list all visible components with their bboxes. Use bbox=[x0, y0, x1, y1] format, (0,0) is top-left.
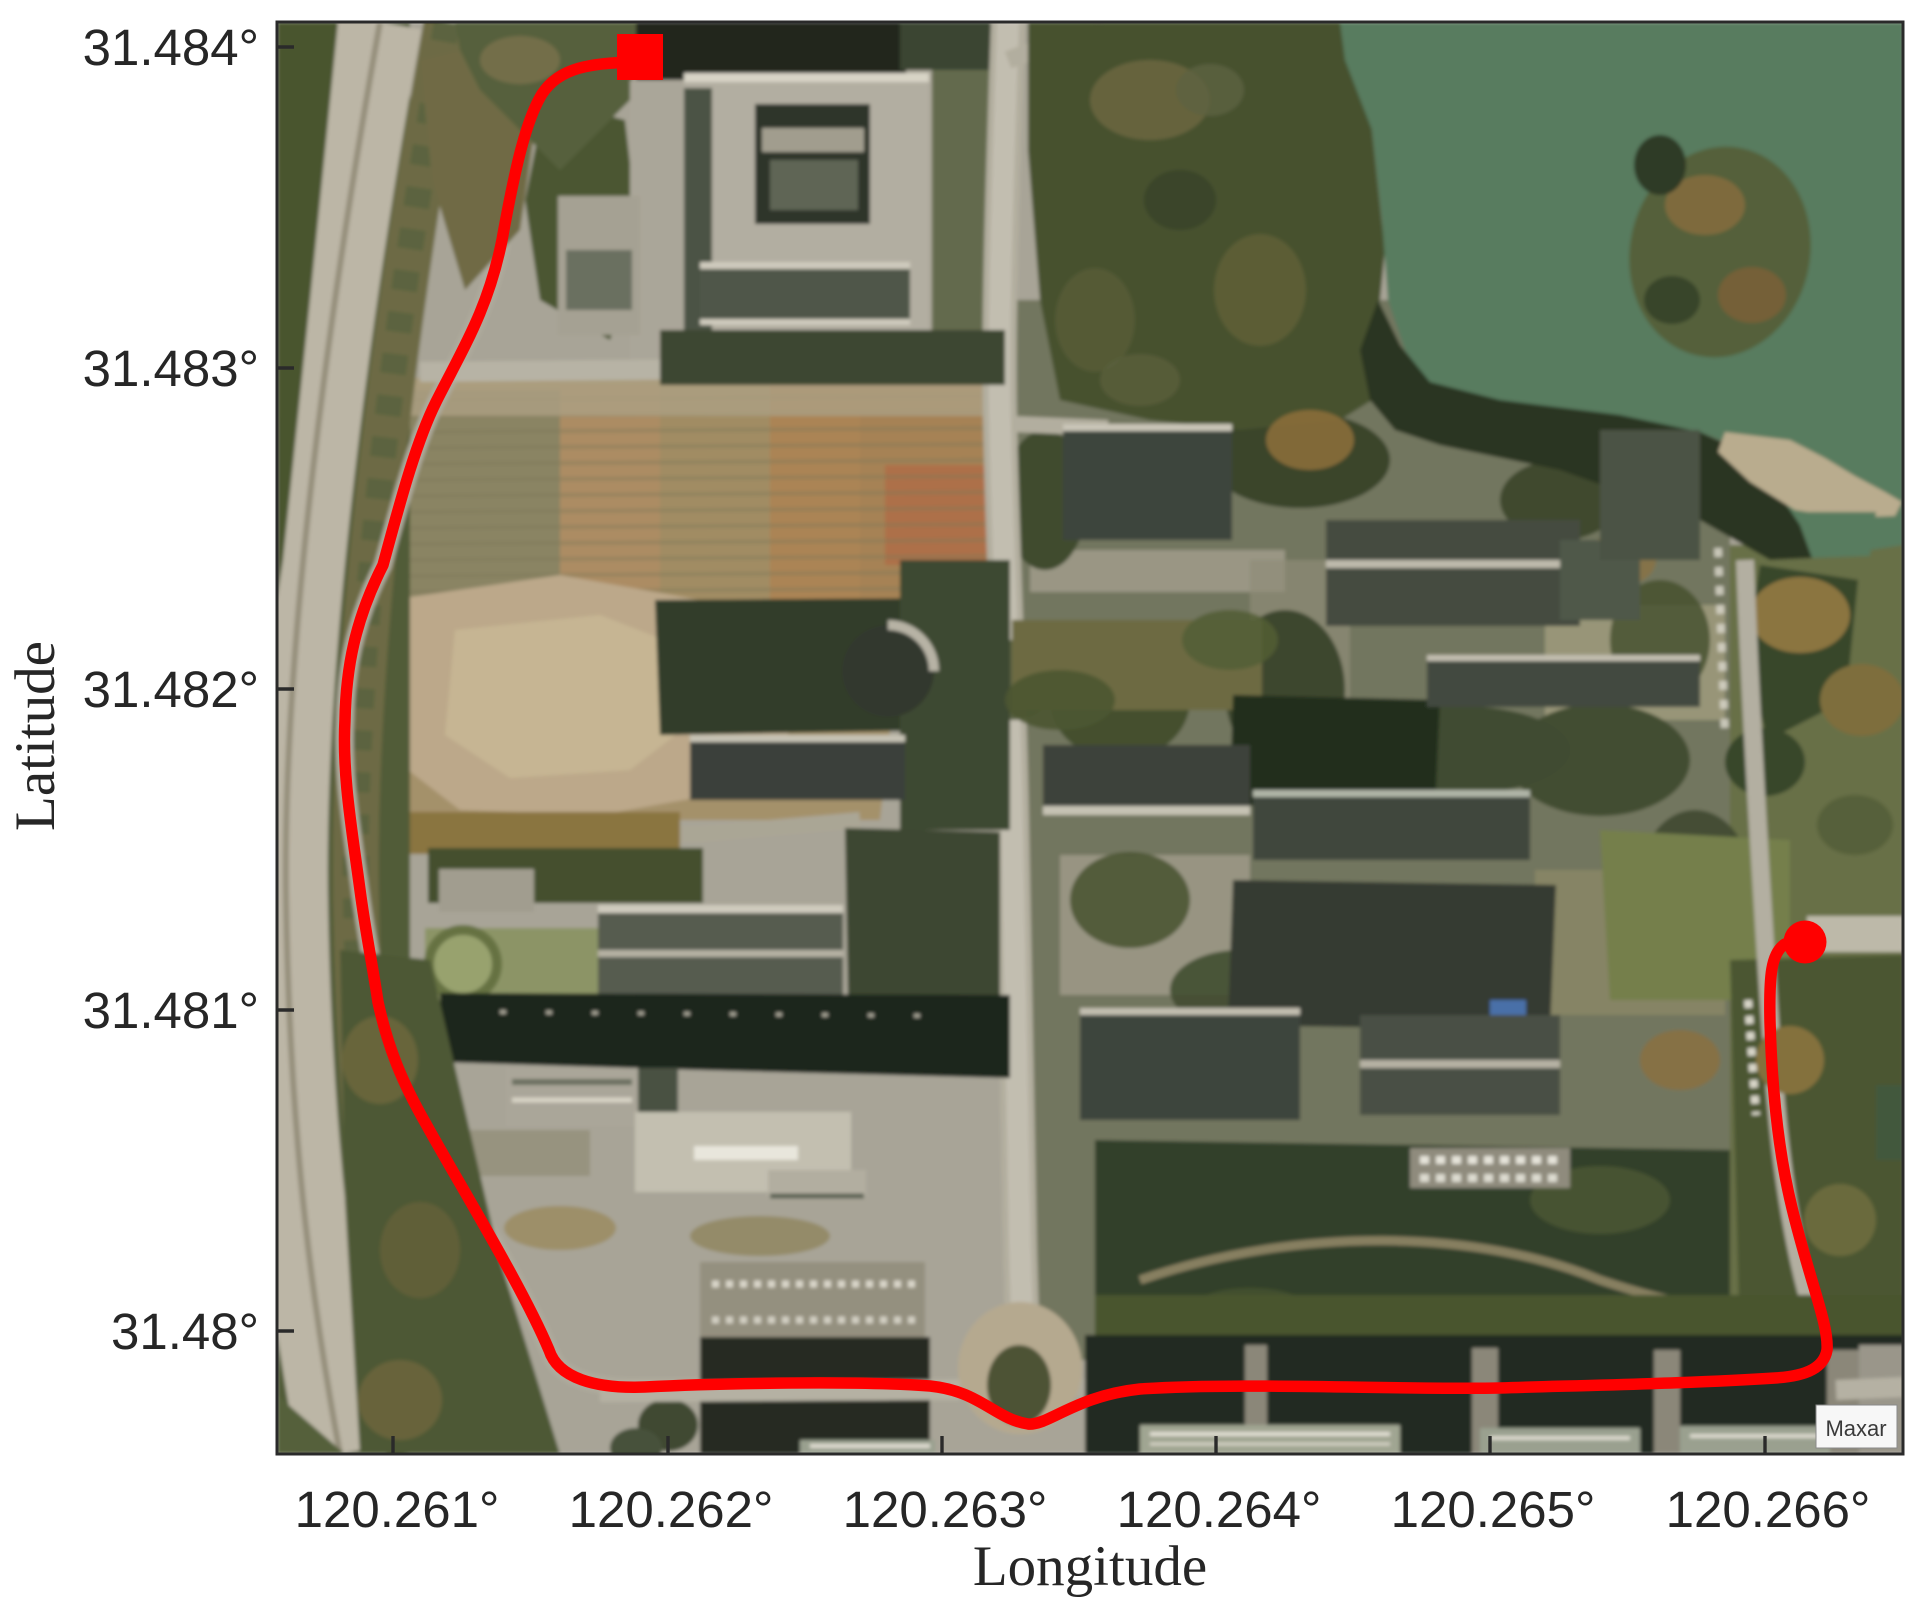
svg-text:Latitude: Latitude bbox=[4, 641, 67, 831]
svg-text:120.264°: 120.264° bbox=[1117, 1481, 1322, 1538]
svg-text:120.263°: 120.263° bbox=[843, 1481, 1048, 1538]
svg-text:31.482°: 31.482° bbox=[83, 661, 259, 718]
svg-text:Longitude: Longitude bbox=[973, 1535, 1207, 1598]
svg-text:120.265°: 120.265° bbox=[1391, 1481, 1596, 1538]
svg-text:31.483°: 31.483° bbox=[83, 340, 259, 397]
svg-text:Maxar: Maxar bbox=[1825, 1416, 1886, 1441]
svg-text:120.261°: 120.261° bbox=[295, 1481, 500, 1538]
svg-text:31.48°: 31.48° bbox=[111, 1303, 259, 1360]
svg-text:120.262°: 120.262° bbox=[569, 1481, 774, 1538]
svg-text:120.266°: 120.266° bbox=[1666, 1481, 1871, 1538]
svg-text:31.481°: 31.481° bbox=[83, 982, 259, 1039]
svg-text:31.484°: 31.484° bbox=[83, 19, 259, 76]
